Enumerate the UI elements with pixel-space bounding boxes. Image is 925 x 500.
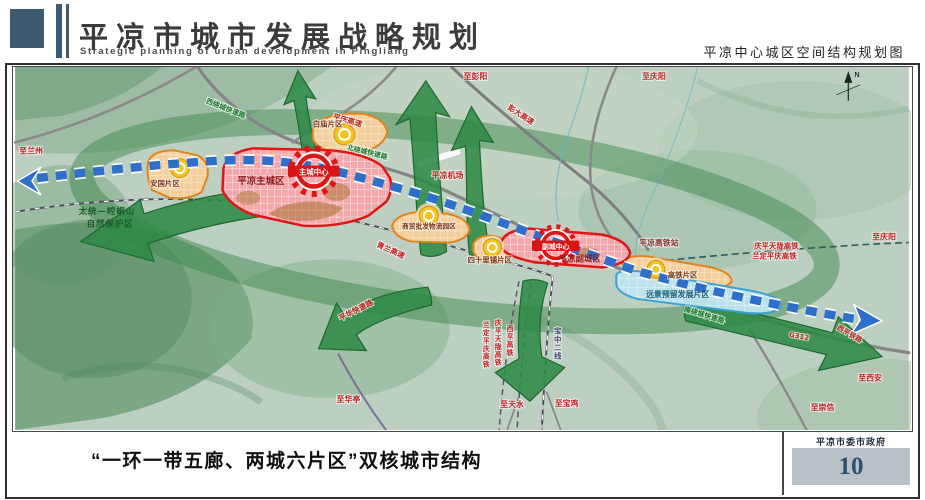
label-district-gaotie: 高铁片区 xyxy=(668,269,698,279)
page-subtitle: Strategic planning of urban development … xyxy=(80,46,410,57)
label-compass-n: N xyxy=(854,70,860,79)
planning-slide: 平凉市城市发展战略规划 Strategic planning of urban … xyxy=(0,0,925,500)
header-bar xyxy=(56,4,62,58)
label-district-logistics: 商贸批发物流园区 xyxy=(402,222,456,231)
label-nature-reserve-2: 自然保护区 xyxy=(87,219,134,229)
label-to-chongxin: 至崇信 xyxy=(811,402,835,412)
label-to-qingyang-east: 至庆阳 xyxy=(872,232,896,242)
label-to-lanzhou: 至兰州 xyxy=(19,145,43,155)
label-hsr-station: 平凉高铁站 xyxy=(639,238,679,248)
label-main-center: 主城中心 xyxy=(299,167,329,177)
org-box: 平凉市委市政府 10 xyxy=(782,432,918,495)
label-nature-reserve-1: 太统—崆峒山 xyxy=(78,206,135,216)
footer: “一环一带五廊、两城六片区”双核城市结构 平凉市委市政府 10 xyxy=(7,432,918,495)
organization-name: 平凉市委市政府 xyxy=(784,435,918,448)
label-to-tianshui: 至天水 xyxy=(500,399,524,409)
label-hsr-landing: 兰定平庆高铁 xyxy=(752,250,797,260)
label-to-pengyang: 至彭阳 xyxy=(463,71,487,81)
map-caption: “一环一带五廊、两城六片区”双核城市结构 xyxy=(91,446,482,473)
label-sub-city: 平凉副城区 xyxy=(559,253,602,263)
label-district-sishilipu: 四十里铺片区 xyxy=(467,254,512,264)
label-hsr-qingping: 庆平天陇高铁 xyxy=(754,240,799,250)
planning-map: 主城中心 副城中心 N 至兰州 至彭阳 至庆阳 至庆阳 至西安 至崇信 至华亭 … xyxy=(12,66,913,432)
header-bar-thin xyxy=(66,4,69,58)
label-sub-center: 副城中心 xyxy=(542,242,570,251)
label-district-baimiao: 白庙片区 xyxy=(313,119,343,129)
logo-square xyxy=(10,9,44,48)
map-sheet-title: 平凉中心城区空间结构规划图 xyxy=(703,42,905,61)
label-district-anguo: 安国片区 xyxy=(150,178,180,188)
label-to-xian: 至西安 xyxy=(858,372,882,382)
page-number: 10 xyxy=(792,448,910,485)
label-to-huating: 至华亭 xyxy=(337,394,361,404)
label-to-qingyang-north: 至庆阳 xyxy=(642,71,666,81)
label-rail-baozhong: 宝中二线 xyxy=(553,325,562,360)
label-district-reserve: 远景预留发展片区 xyxy=(646,289,709,299)
label-airport: 平凉机场 xyxy=(432,170,464,180)
label-to-baoji: 至宝鸡 xyxy=(555,398,579,408)
label-main-city: 平凉主城区 xyxy=(237,175,285,187)
